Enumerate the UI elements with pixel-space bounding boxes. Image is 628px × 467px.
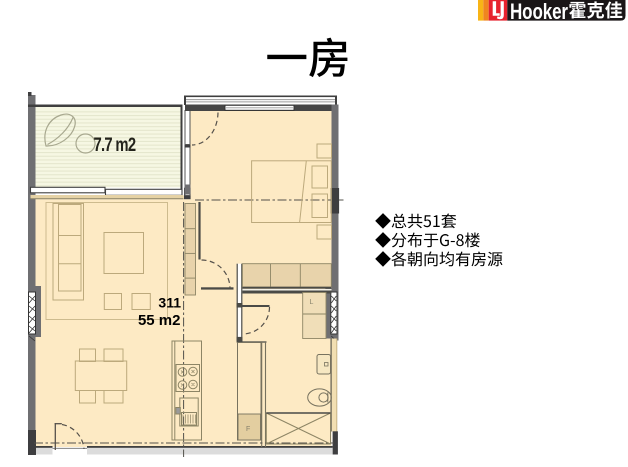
svg-text:55 m2: 55 m2 bbox=[138, 312, 181, 329]
svg-text:L: L bbox=[310, 299, 314, 306]
svg-text:Hooker: Hooker bbox=[510, 0, 568, 25]
svg-text:F: F bbox=[246, 426, 250, 433]
svg-text:311: 311 bbox=[158, 295, 181, 311]
svg-text:7.7 m2: 7.7 m2 bbox=[94, 133, 136, 156]
